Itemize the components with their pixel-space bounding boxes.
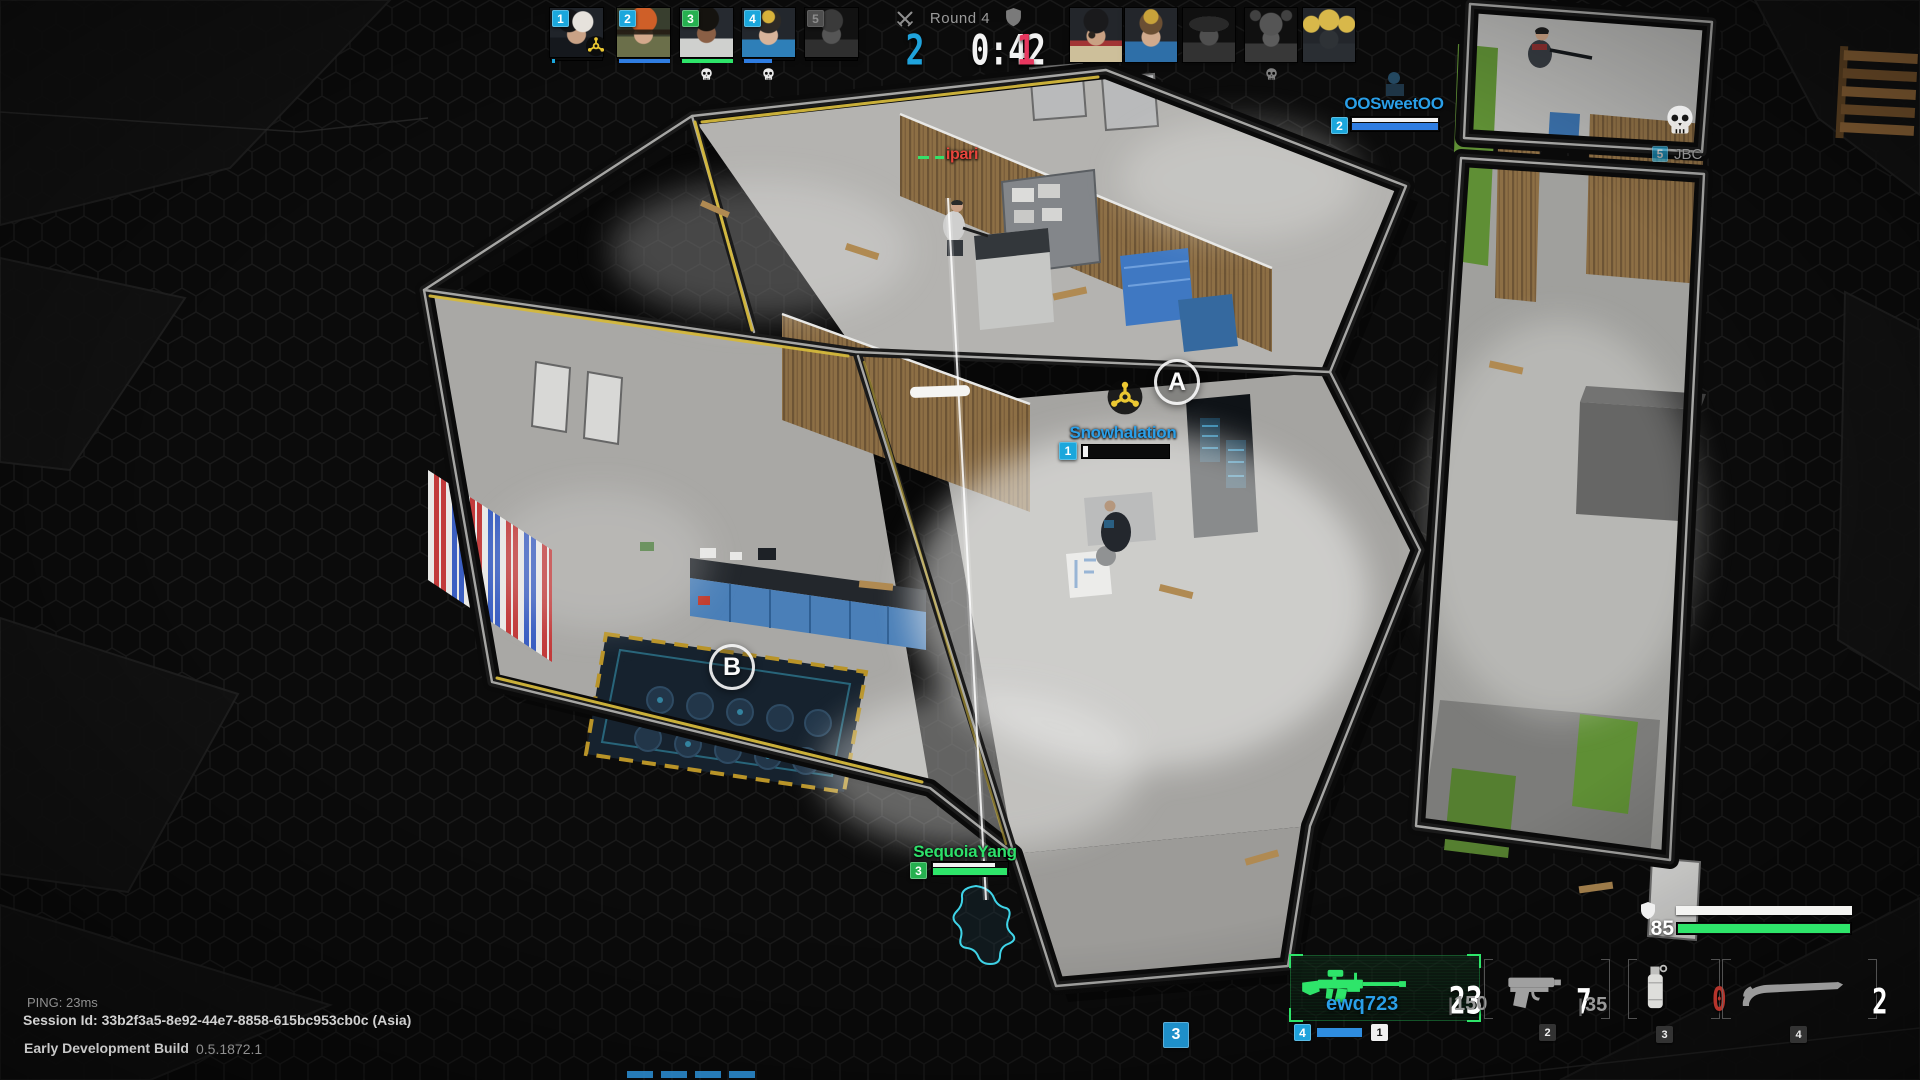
game-viewport[interactable]: 12345 Round 4 2 0:42 1 A B OOSweetOO 2 S… [0, 0, 1920, 1080]
game-world-render [0, 0, 1920, 1080]
